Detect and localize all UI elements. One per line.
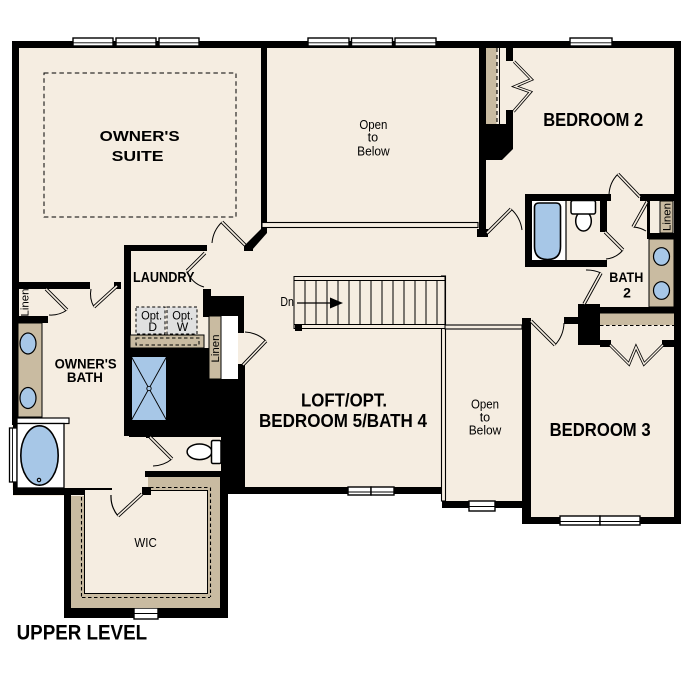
- svg-text:Linen: Linen: [662, 203, 674, 231]
- svg-text:Below: Below: [469, 424, 502, 438]
- svg-text:BATH: BATH: [609, 269, 643, 285]
- svg-text:BATH: BATH: [67, 369, 103, 385]
- svg-text:D: D: [148, 320, 157, 334]
- svg-text:OWNER'S: OWNER'S: [100, 128, 180, 145]
- svg-text:SUITE: SUITE: [112, 148, 164, 165]
- svg-text:WIC: WIC: [134, 535, 156, 550]
- svg-text:BEDROOM 3: BEDROOM 3: [550, 420, 651, 440]
- svg-text:LOFT/OPT.: LOFT/OPT.: [301, 390, 387, 411]
- svg-text:to: to: [480, 411, 491, 425]
- svg-text:BEDROOM 2: BEDROOM 2: [543, 109, 643, 130]
- svg-text:Linen: Linen: [210, 335, 222, 363]
- svg-text:UPPER LEVEL: UPPER LEVEL: [17, 622, 148, 645]
- svg-text:W: W: [177, 320, 189, 334]
- svg-text:LAUNDRY: LAUNDRY: [133, 270, 195, 286]
- svg-text:Linen: Linen: [20, 289, 32, 317]
- svg-text:Dn: Dn: [280, 295, 294, 309]
- svg-text:Below: Below: [357, 145, 390, 159]
- svg-text:to: to: [368, 131, 379, 145]
- svg-text:BEDROOM 5/BATH 4: BEDROOM 5/BATH 4: [259, 410, 428, 431]
- svg-text:2: 2: [623, 284, 631, 300]
- svg-text:Open: Open: [471, 398, 499, 412]
